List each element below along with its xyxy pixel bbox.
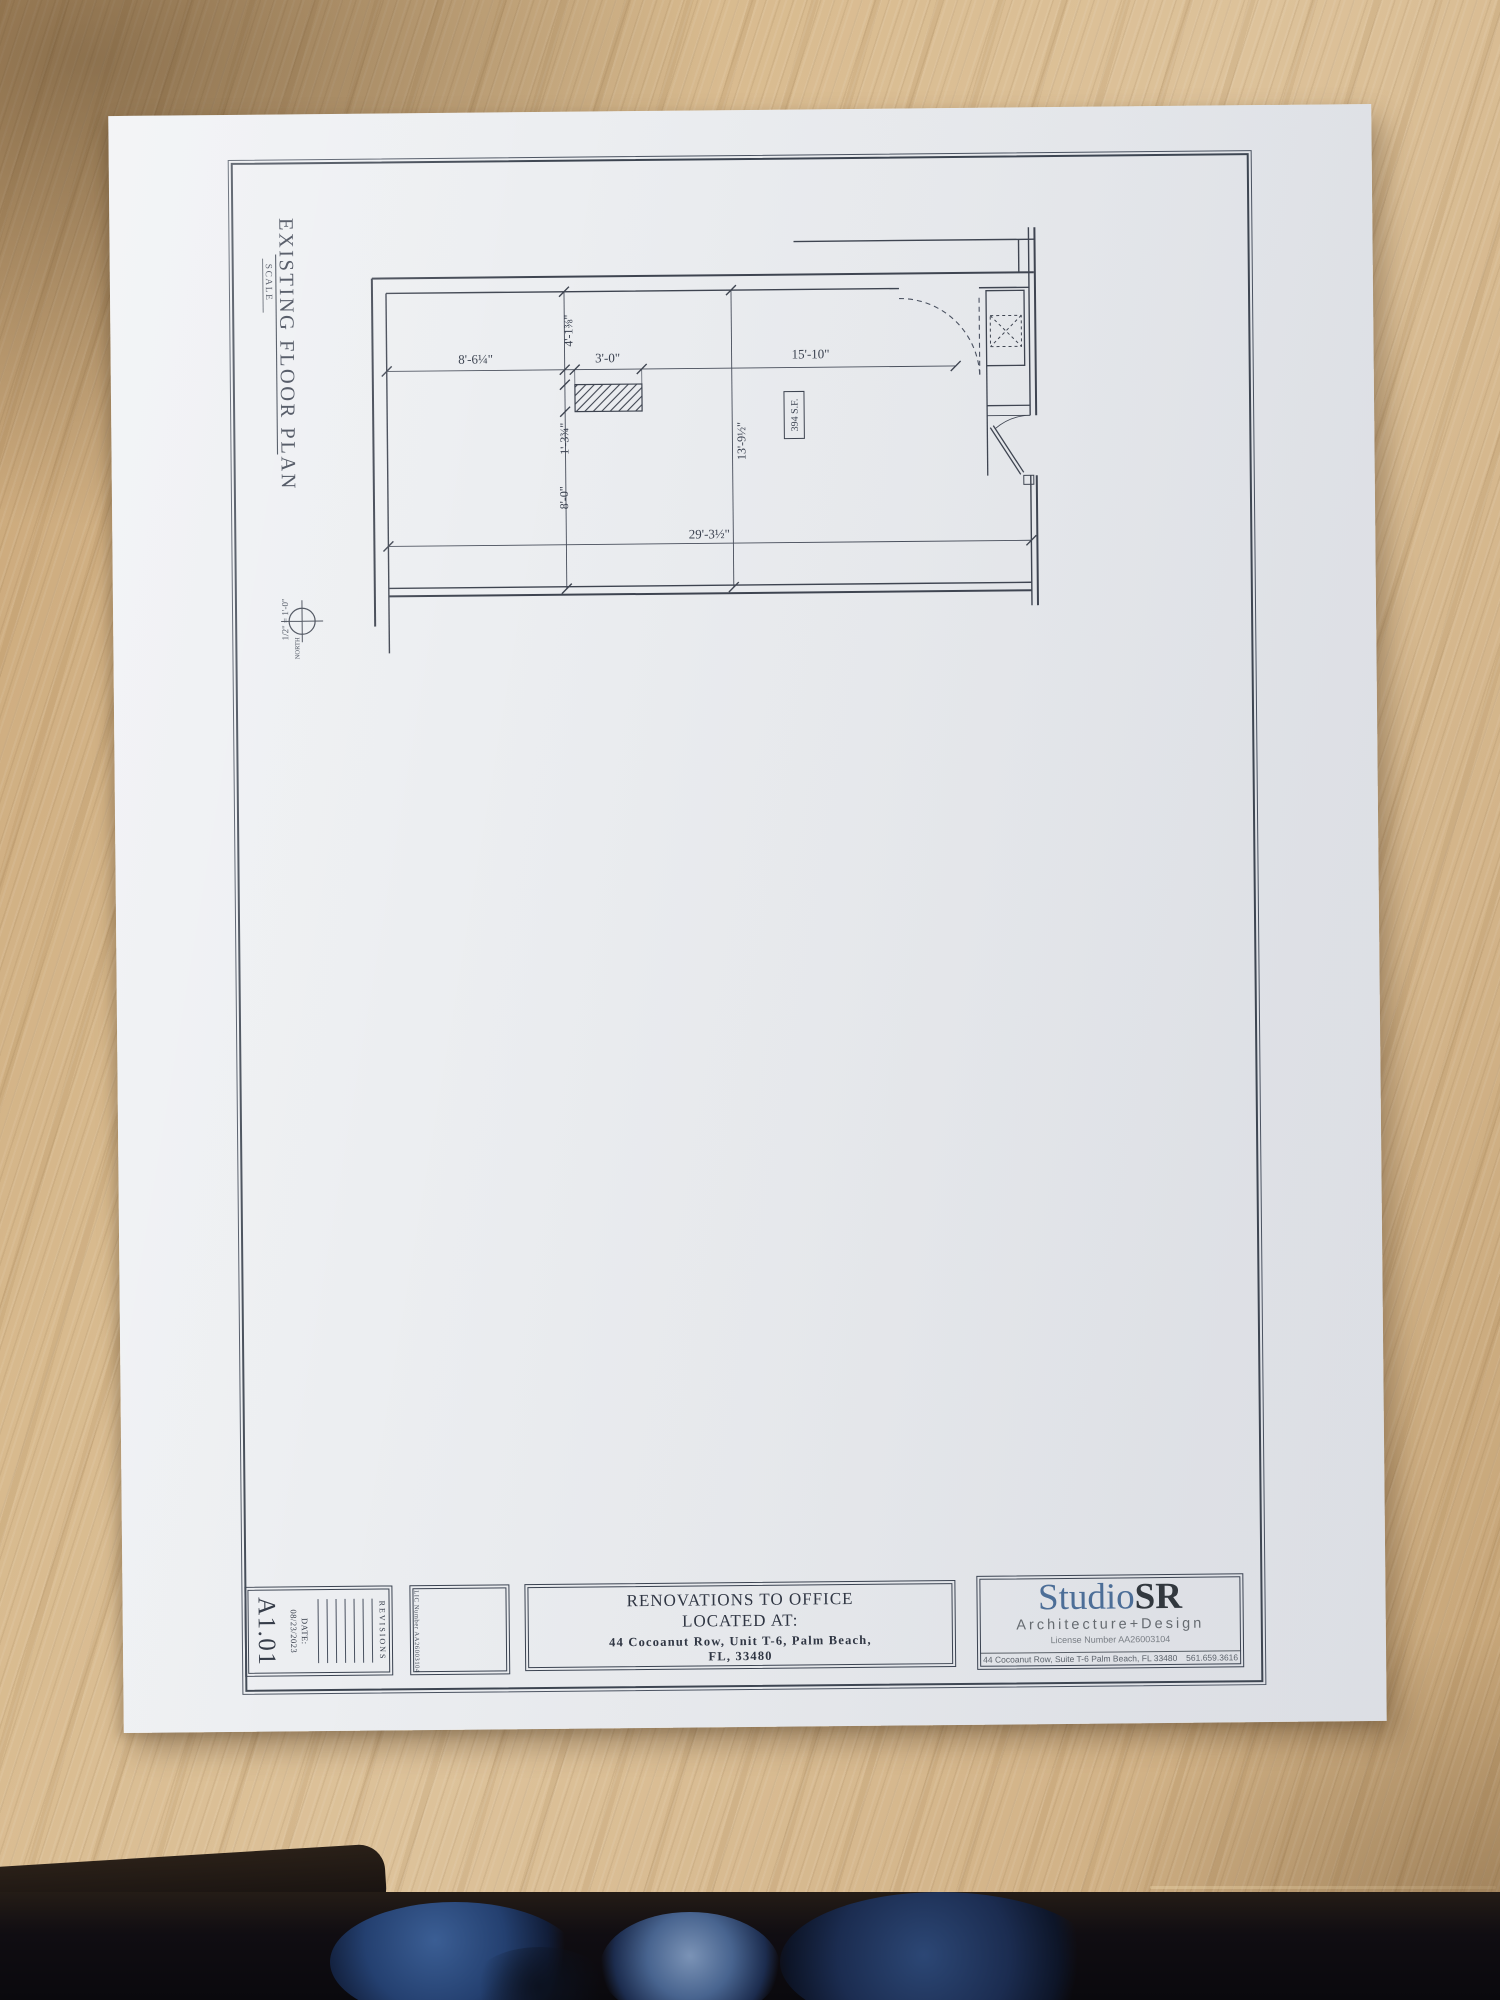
light-blue-object-blob xyxy=(600,1912,780,2000)
sheet-number: A1.01 xyxy=(251,1588,280,1676)
dim-overall-width: 29'-3½" xyxy=(689,526,730,541)
dark-blue-object-blob xyxy=(780,1892,1100,2000)
dim-top-left-width: 8'-6¼" xyxy=(458,351,493,366)
walls-outer xyxy=(371,227,1038,626)
license-side-label: LIC Number AA26003104 xyxy=(412,1590,420,1673)
side-door-leaf xyxy=(990,415,1031,474)
dim-closet-depth: 1'-3¾" xyxy=(557,423,571,455)
drawing-sheet: EXISTING FLOOR PLAN SCALE 8'-6¼" 3'-0" 1… xyxy=(108,104,1386,1733)
walls-inner xyxy=(385,227,1038,653)
desk-edge-highlight xyxy=(1150,1886,1496,1889)
north-label: NORTH xyxy=(294,637,301,659)
dim-top-right-width: 15'-10" xyxy=(792,346,830,361)
scale-value: 1/2" = 1'-0" xyxy=(280,598,290,640)
dim-closet-offset: 4'-1⅜" xyxy=(561,314,575,346)
firm-logo: StudioSR xyxy=(977,1577,1242,1617)
shaft-x-symbol xyxy=(990,315,1021,346)
revisions-rules xyxy=(318,1599,374,1664)
dim-closet-width: 3'-0" xyxy=(595,350,620,365)
shaft-detail xyxy=(986,290,1034,484)
license-side-block: LIC Number AA26003104 xyxy=(409,1584,510,1675)
scale-label: SCALE xyxy=(263,264,273,302)
firm-logo-block: StudioSR Architecture+Design License Num… xyxy=(976,1573,1244,1670)
firm-license: License Number AA26003104 xyxy=(978,1633,1243,1646)
firm-address-strip: 44 Cocoanut Row, Suite T-6 Palm Beach, F… xyxy=(980,1650,1241,1667)
hatched-opening xyxy=(575,384,642,412)
date-value: 08/23/2023 xyxy=(287,1587,299,1675)
dim-room-depth: 13'-9½" xyxy=(734,422,748,460)
firm-name-dark: SR xyxy=(1134,1576,1182,1617)
firm-tagline: Architecture+Design xyxy=(978,1615,1243,1634)
dimension-ticks xyxy=(381,282,1037,595)
area-label: 394 S.F. xyxy=(790,399,801,432)
dim-left-height: 8'-0" xyxy=(557,486,571,509)
firm-address: 44 Cocoanut Row, Suite T-6 Palm Beach, F… xyxy=(983,1653,1177,1665)
desk-edge-dark-band xyxy=(0,1892,1500,2000)
project-line4: FL, 33480 xyxy=(526,1647,955,1666)
floor-plan-drawing: EXISTING FLOOR PLAN SCALE 8'-6¼" 3'-0" 1… xyxy=(108,104,1386,1733)
date-label: DATE: xyxy=(298,1587,310,1675)
project-line2: LOCATED AT: xyxy=(526,1609,955,1633)
desk-photo: EXISTING FLOOR PLAN SCALE 8'-6¼" 3'-0" 1… xyxy=(0,0,1500,2000)
firm-phone: 561.659.3616 xyxy=(1186,1652,1238,1662)
plan-title-vertical: EXISTING FLOOR PLAN xyxy=(274,218,299,491)
sheet-info-block: REVISIONS DATE: 08/23/2023 A1.01 xyxy=(244,1585,393,1676)
project-line1: RENOVATIONS TO OFFICE xyxy=(525,1588,954,1612)
revisions-label: REVISIONS xyxy=(377,1586,387,1674)
dimension-lines xyxy=(386,287,1032,590)
project-title-block: RENOVATIONS TO OFFICE LOCATED AT: 44 Coc… xyxy=(524,1580,956,1671)
firm-name-blue: Studio xyxy=(1038,1576,1135,1618)
